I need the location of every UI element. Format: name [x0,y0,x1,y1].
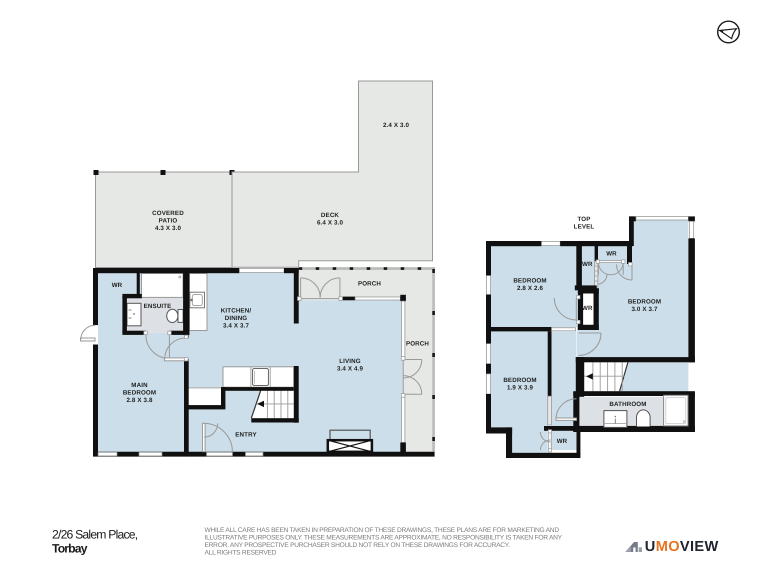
svg-text:DINING: DINING [225,315,248,322]
svg-text:WR: WR [112,282,123,289]
svg-text:3.4 X 4.9: 3.4 X 4.9 [337,366,364,373]
svg-text:6.4 X 3.0: 6.4 X 3.0 [317,220,344,227]
svg-text:BEDROOM: BEDROOM [513,278,546,285]
svg-text:2.8 X 2.6: 2.8 X 2.6 [517,285,544,292]
svg-text:ILLUSTRATIVE PURPOSES ONLY. TH: ILLUSTRATIVE PURPOSES ONLY. THESE MEASUR… [205,535,563,542]
svg-text:WR: WR [557,438,568,445]
svg-text:MAIN: MAIN [131,382,148,389]
svg-text:WR: WR [606,251,617,258]
svg-text:2.8 X 3.8: 2.8 X 3.8 [126,397,153,404]
svg-text:TOP: TOP [577,216,590,223]
svg-text:BEDROOM: BEDROOM [503,377,536,384]
svg-text:WR: WR [582,305,593,312]
svg-text:ALL RIGHTS RESERVED: ALL RIGHTS RESERVED [205,550,277,557]
svg-text:LEVEL: LEVEL [574,224,595,231]
svg-text:3.0 X 3.7: 3.0 X 3.7 [631,306,658,313]
svg-text:PORCH: PORCH [358,281,381,288]
svg-text:Torbay: Torbay [52,542,88,556]
svg-text:1.9 X 3.9: 1.9 X 3.9 [507,385,534,392]
svg-text:2/26 Salem Place,: 2/26 Salem Place, [52,528,138,542]
svg-text:BATHROOM: BATHROOM [609,401,646,408]
svg-text:ENTRY: ENTRY [235,432,257,439]
svg-text:WHILE ALL CARE HAS BEEN TAKEN: WHILE ALL CARE HAS BEEN TAKEN IN PREPARA… [205,527,560,534]
svg-text:2.4 X 3.0: 2.4 X 3.0 [383,122,410,129]
svg-text:4.3 X 3.0: 4.3 X 3.0 [155,225,182,232]
svg-text:BEDROOM: BEDROOM [123,390,156,397]
svg-text:ENSUITE: ENSUITE [144,303,172,310]
svg-text:DECK: DECK [321,212,340,219]
svg-text:PORCH: PORCH [406,341,429,348]
svg-text:COVERED: COVERED [152,210,184,217]
svg-text:UMOVIEW: UMOVIEW [645,539,719,555]
svg-text:LIVING: LIVING [339,358,361,365]
svg-text:BEDROOM: BEDROOM [628,299,661,306]
svg-text:ERROR. ANY PROSPECTIVE PURCHAS: ERROR. ANY PROSPECTIVE PURCHASER SHOULD … [205,542,511,549]
svg-text:KITCHEN/: KITCHEN/ [221,308,252,315]
svg-text:PATIO: PATIO [159,218,178,225]
svg-text:3.4 X 3.7: 3.4 X 3.7 [223,323,250,330]
svg-text:WR: WR [582,261,593,268]
